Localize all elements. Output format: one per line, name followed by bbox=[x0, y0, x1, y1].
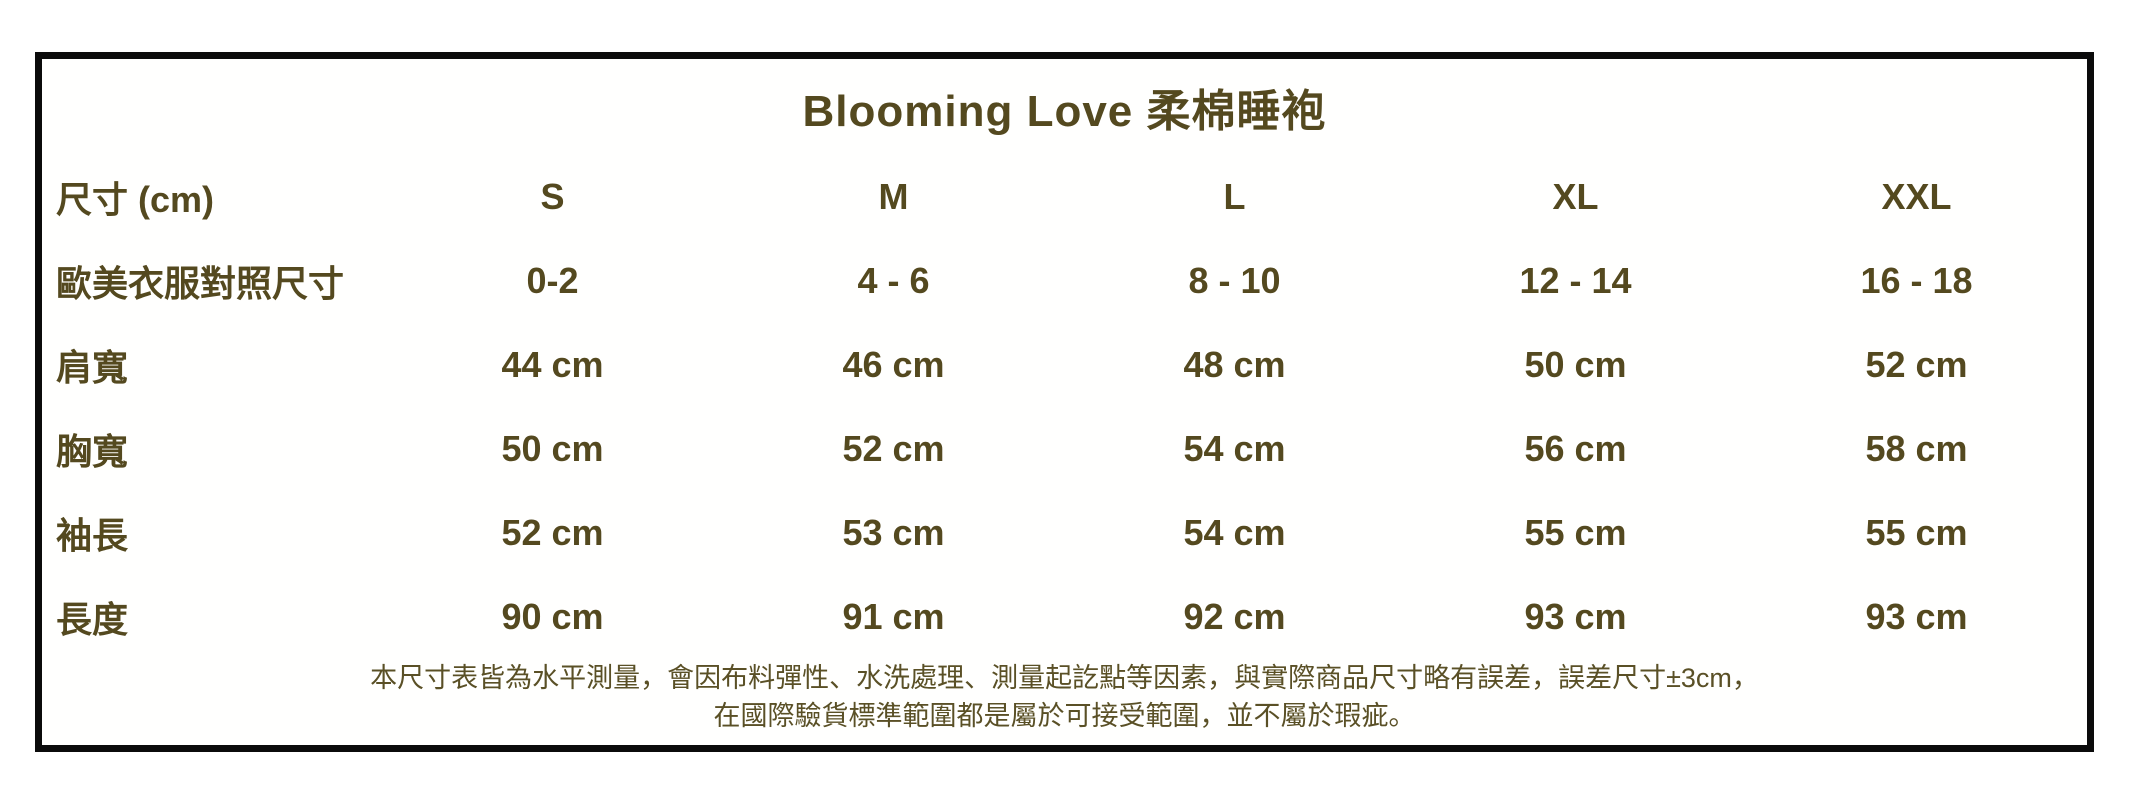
size-cell: 92 cm bbox=[1064, 596, 1405, 638]
size-cell: 55 cm bbox=[1405, 512, 1746, 554]
size-chart-frame: Blooming Love 柔棉睡袍 尺寸 (cm)SMLXLXXL歐美衣服對照… bbox=[35, 52, 2094, 752]
size-cell: 54 cm bbox=[1064, 512, 1405, 554]
size-cell: 4 - 6 bbox=[723, 260, 1064, 302]
size-table: 尺寸 (cm)SMLXLXXL歐美衣服對照尺寸0-24 - 68 - 1012 … bbox=[42, 155, 2087, 659]
size-cell: 52 cm bbox=[1746, 344, 2087, 386]
table-row: 胸寬50 cm52 cm54 cm56 cm58 cm bbox=[42, 407, 2087, 491]
size-cell: S bbox=[382, 176, 723, 218]
size-cell: 91 cm bbox=[723, 596, 1064, 638]
row-label: 肩寬 bbox=[42, 339, 382, 391]
table-row: 歐美衣服對照尺寸0-24 - 68 - 1012 - 1416 - 18 bbox=[42, 239, 2087, 323]
size-cell: 44 cm bbox=[382, 344, 723, 386]
size-cell: 8 - 10 bbox=[1064, 260, 1405, 302]
size-cell: 58 cm bbox=[1746, 428, 2087, 470]
size-cell: L bbox=[1064, 176, 1405, 218]
size-cell: M bbox=[723, 176, 1064, 218]
size-cell: 52 cm bbox=[723, 428, 1064, 470]
footnote-line-1: 本尺寸表皆為水平測量，會因布料彈性、水洗處理、測量起訖點等因素，與實際商品尺寸略… bbox=[42, 659, 2087, 697]
row-label: 歐美衣服對照尺寸 bbox=[42, 255, 382, 307]
size-cell: 50 cm bbox=[1405, 344, 1746, 386]
size-cell: 0-2 bbox=[382, 260, 723, 302]
size-cell: 93 cm bbox=[1746, 596, 2087, 638]
size-cell: XXL bbox=[1746, 176, 2087, 218]
size-cell: 53 cm bbox=[723, 512, 1064, 554]
product-title: Blooming Love 柔棉睡袍 bbox=[42, 59, 2087, 155]
table-header-row: 尺寸 (cm)SMLXLXXL bbox=[42, 155, 2087, 239]
row-label: 袖長 bbox=[42, 507, 382, 559]
size-cell: 50 cm bbox=[382, 428, 723, 470]
size-cell: 16 - 18 bbox=[1746, 260, 2087, 302]
row-label: 尺寸 (cm) bbox=[42, 171, 382, 223]
size-cell: 48 cm bbox=[1064, 344, 1405, 386]
size-cell: 93 cm bbox=[1405, 596, 1746, 638]
size-cell: 46 cm bbox=[723, 344, 1064, 386]
table-row: 長度90 cm91 cm92 cm93 cm93 cm bbox=[42, 575, 2087, 659]
size-cell: XL bbox=[1405, 176, 1746, 218]
footnotes: 本尺寸表皆為水平測量，會因布料彈性、水洗處理、測量起訖點等因素，與實際商品尺寸略… bbox=[42, 659, 2087, 735]
size-cell: 12 - 14 bbox=[1405, 260, 1746, 302]
size-cell: 90 cm bbox=[382, 596, 723, 638]
footnote-line-2: 在國際驗貨標準範圍都是屬於可接受範圍，並不屬於瑕疵。 bbox=[42, 697, 2087, 735]
size-cell: 54 cm bbox=[1064, 428, 1405, 470]
table-row: 肩寬44 cm46 cm48 cm50 cm52 cm bbox=[42, 323, 2087, 407]
size-cell: 55 cm bbox=[1746, 512, 2087, 554]
table-row: 袖長52 cm53 cm54 cm55 cm55 cm bbox=[42, 491, 2087, 575]
row-label: 胸寬 bbox=[42, 423, 382, 475]
row-label: 長度 bbox=[42, 591, 382, 643]
size-cell: 52 cm bbox=[382, 512, 723, 554]
size-cell: 56 cm bbox=[1405, 428, 1746, 470]
